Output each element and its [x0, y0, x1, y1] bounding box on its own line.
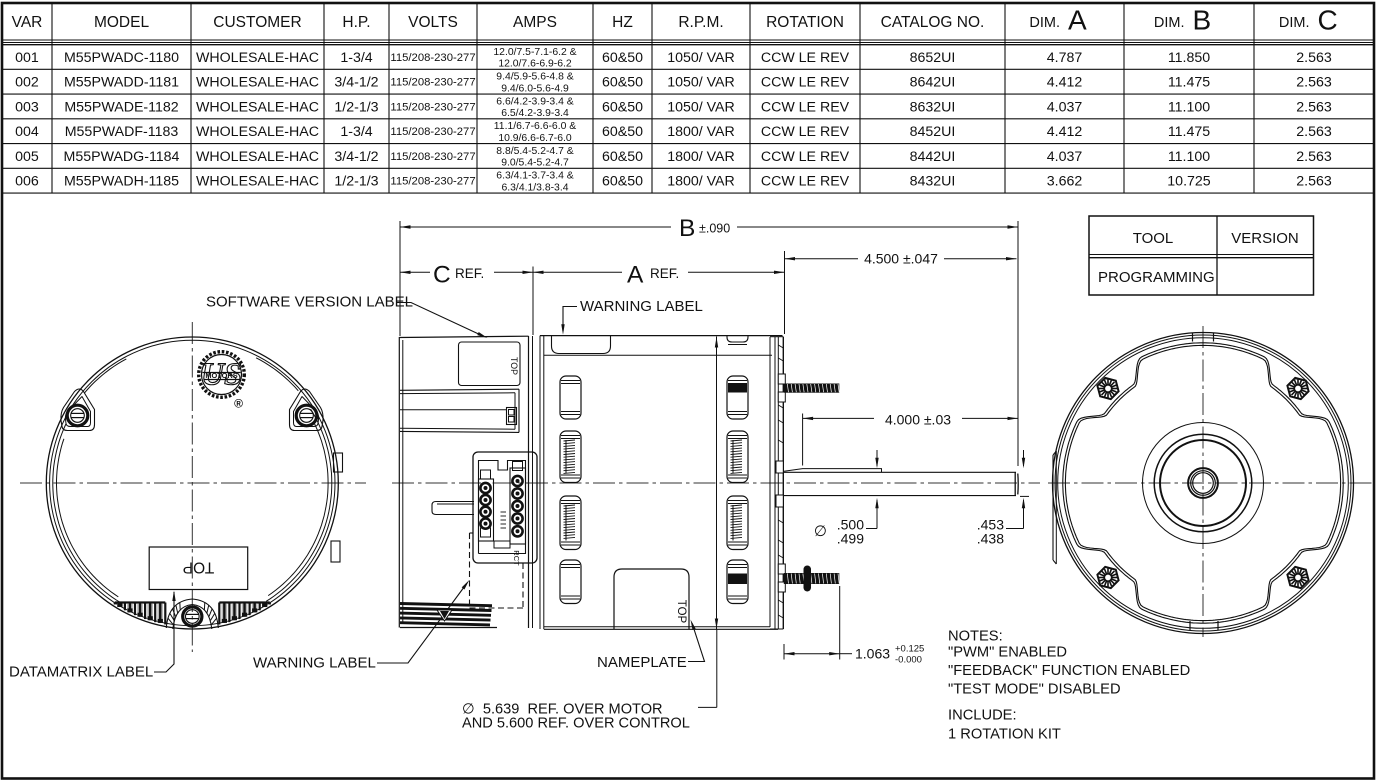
- svg-text:001: 001: [15, 50, 39, 66]
- svg-text:A: A: [1068, 5, 1087, 36]
- svg-text:2.563: 2.563: [1296, 149, 1332, 165]
- svg-text:C: C: [433, 261, 451, 288]
- svg-text:003: 003: [15, 99, 39, 115]
- svg-text:4.037: 4.037: [1047, 149, 1083, 165]
- svg-text:60&50: 60&50: [602, 124, 643, 140]
- svg-text:11.100: 11.100: [1168, 149, 1210, 165]
- svg-text:SOFTWARE VERSION LABEL: SOFTWARE VERSION LABEL: [206, 294, 413, 311]
- svg-text:WHOLESALE-HAC: WHOLESALE-HAC: [196, 50, 319, 66]
- svg-text:8.8/5.4-5.2-4.7 &: 8.8/5.4-5.2-4.7 &: [496, 146, 573, 157]
- svg-text:115/208-230-277: 115/208-230-277: [390, 52, 475, 64]
- svg-text:115/208-230-277: 115/208-230-277: [390, 77, 475, 89]
- svg-text:12.0/7.5-7.1-6.2 &: 12.0/7.5-7.1-6.2 &: [493, 47, 576, 58]
- svg-text:CCW LE REV: CCW LE REV: [761, 75, 850, 91]
- svg-text:8442UI: 8442UI: [910, 149, 956, 165]
- svg-text:8642UI: 8642UI: [910, 75, 956, 91]
- svg-text:∅: ∅: [814, 523, 827, 540]
- svg-text:1800/ VAR: 1800/ VAR: [667, 149, 735, 165]
- svg-text:PROGRAMMING: PROGRAMMING: [1098, 269, 1215, 286]
- svg-text:H.P.: H.P.: [342, 14, 370, 31]
- svg-text:C: C: [1318, 5, 1338, 36]
- svg-text:1050/ VAR: 1050/ VAR: [667, 50, 735, 66]
- svg-text:M55PWADD-1181: M55PWADD-1181: [64, 75, 179, 91]
- svg-text:11.100: 11.100: [1168, 99, 1210, 115]
- svg-text:12.0/7.6-6.9-6.2: 12.0/7.6-6.9-6.2: [498, 59, 572, 70]
- svg-text:60&50: 60&50: [602, 174, 643, 190]
- svg-text:6.3/4.1-3.7-3.4 &: 6.3/4.1-3.7-3.4 &: [496, 171, 573, 182]
- svg-text:WHOLESALE-HAC: WHOLESALE-HAC: [196, 174, 319, 190]
- svg-text:M55PWADC-1180: M55PWADC-1180: [64, 50, 179, 66]
- svg-text:60&50: 60&50: [602, 99, 643, 115]
- svg-text:8452UI: 8452UI: [910, 124, 956, 140]
- svg-text:4.787: 4.787: [1047, 50, 1083, 66]
- svg-text:R.P.M.: R.P.M.: [678, 14, 723, 31]
- svg-text:B: B: [1193, 5, 1212, 36]
- svg-text:2.563: 2.563: [1296, 99, 1332, 115]
- svg-text:CCW LE REV: CCW LE REV: [761, 124, 850, 140]
- svg-text:4.412: 4.412: [1047, 75, 1083, 91]
- svg-text:8632UI: 8632UI: [910, 99, 956, 115]
- svg-text:11.850: 11.850: [1168, 50, 1210, 66]
- svg-text:INCLUDE:: INCLUDE:: [948, 708, 1017, 724]
- svg-text:2.563: 2.563: [1296, 50, 1332, 66]
- svg-text:005: 005: [15, 149, 39, 165]
- svg-text:2.563: 2.563: [1296, 124, 1332, 140]
- svg-text:RCT: RCT: [512, 550, 521, 566]
- svg-text:"FEEDBACK" FUNCTION ENABLED: "FEEDBACK" FUNCTION ENABLED: [948, 663, 1190, 679]
- svg-text:"PWM" ENABLED: "PWM" ENABLED: [948, 645, 1067, 661]
- svg-text:3/4-1/2: 3/4-1/2: [334, 75, 378, 91]
- svg-text:3.662: 3.662: [1047, 174, 1083, 190]
- svg-text:1050/ VAR: 1050/ VAR: [667, 99, 735, 115]
- svg-text:NAMEPLATE: NAMEPLATE: [597, 654, 687, 671]
- svg-text:1.063: 1.063: [855, 646, 890, 662]
- svg-text:1 ROTATION KIT: 1 ROTATION KIT: [948, 727, 1061, 743]
- svg-text:4.037: 4.037: [1047, 99, 1083, 115]
- svg-text:CCW LE REV: CCW LE REV: [761, 99, 850, 115]
- svg-text:115/208-230-277: 115/208-230-277: [390, 151, 475, 163]
- svg-text:TOP: TOP: [509, 357, 519, 375]
- svg-text:TOP: TOP: [675, 600, 687, 624]
- svg-text:WHOLESALE-HAC: WHOLESALE-HAC: [196, 124, 319, 140]
- svg-text:002: 002: [15, 75, 39, 91]
- svg-text:1050/ VAR: 1050/ VAR: [667, 75, 735, 91]
- svg-text:CATALOG NO.: CATALOG NO.: [881, 14, 985, 31]
- svg-text:B: B: [679, 215, 695, 242]
- svg-text:CUSTOMER: CUSTOMER: [213, 14, 301, 31]
- svg-text:WARNING LABEL: WARNING LABEL: [580, 298, 703, 315]
- svg-text:6.5/4.2-3.9-3.4: 6.5/4.2-3.9-3.4: [501, 108, 569, 119]
- svg-text:MODEL: MODEL: [94, 14, 150, 31]
- svg-text:60&50: 60&50: [602, 75, 643, 91]
- svg-text:11.1/6.7-6.6-6.0 &: 11.1/6.7-6.6-6.0 &: [494, 121, 576, 132]
- svg-text:NOTES:: NOTES:: [948, 629, 1003, 645]
- svg-text:+0.125: +0.125: [895, 644, 924, 655]
- svg-text:.499: .499: [837, 531, 864, 547]
- svg-text:VERSION: VERSION: [1231, 230, 1299, 247]
- svg-text:MOTORS: MOTORS: [205, 371, 237, 380]
- svg-text:M55PWADE-1182: M55PWADE-1182: [64, 99, 178, 115]
- svg-text:WHOLESALE-HAC: WHOLESALE-HAC: [196, 149, 319, 165]
- svg-text:1800/ VAR: 1800/ VAR: [667, 124, 735, 140]
- svg-text:1-3/4: 1-3/4: [340, 50, 372, 66]
- svg-text:DIM.: DIM.: [1279, 15, 1310, 31]
- svg-text:60&50: 60&50: [602, 50, 643, 66]
- svg-text:WARNING LABEL: WARNING LABEL: [253, 655, 376, 672]
- svg-text:9.4/6.0-5.6-4.9: 9.4/6.0-5.6-4.9: [501, 83, 569, 94]
- svg-text:WHOLESALE-HAC: WHOLESALE-HAC: [196, 75, 319, 91]
- svg-text:DATAMATRIX LABEL: DATAMATRIX LABEL: [9, 664, 153, 681]
- svg-text:HZ: HZ: [612, 14, 633, 31]
- svg-text:±.090: ±.090: [699, 222, 730, 236]
- svg-text:ROTATION: ROTATION: [766, 14, 844, 31]
- svg-text:TOP: TOP: [183, 559, 215, 576]
- svg-text:9.0/5.4-5.2-4.7: 9.0/5.4-5.2-4.7: [501, 158, 569, 169]
- svg-text:.438: .438: [977, 531, 1004, 547]
- svg-text:60&50: 60&50: [602, 149, 643, 165]
- svg-text:004: 004: [15, 124, 39, 140]
- svg-text:11.475: 11.475: [1168, 75, 1210, 91]
- svg-text:2.563: 2.563: [1296, 75, 1332, 91]
- svg-text:8652UI: 8652UI: [910, 50, 956, 66]
- svg-text:1-3/4: 1-3/4: [340, 124, 372, 140]
- svg-text:006: 006: [15, 174, 39, 190]
- svg-text:11.475: 11.475: [1168, 124, 1210, 140]
- svg-text:2.563: 2.563: [1296, 174, 1332, 190]
- svg-text:8432UI: 8432UI: [910, 174, 956, 190]
- svg-text:AMPS: AMPS: [513, 14, 557, 31]
- svg-text:®: ®: [234, 397, 243, 411]
- svg-text:"TEST MODE" DISABLED: "TEST MODE" DISABLED: [948, 682, 1121, 698]
- svg-text:1/2-1/3: 1/2-1/3: [334, 99, 378, 115]
- svg-text:WHOLESALE-HAC: WHOLESALE-HAC: [196, 99, 319, 115]
- svg-text:TOOL: TOOL: [1133, 230, 1174, 247]
- svg-text:CCW LE REV: CCW LE REV: [761, 174, 850, 190]
- svg-text:1800/ VAR: 1800/ VAR: [667, 174, 735, 190]
- svg-text:VAR: VAR: [12, 14, 43, 31]
- svg-text:AND 5.600 REF. OVER CONTROL: AND 5.600 REF. OVER CONTROL: [462, 716, 690, 732]
- svg-text:6.6/4.2-3.9-3.4 &: 6.6/4.2-3.9-3.4 &: [496, 96, 573, 107]
- svg-text:10.9/6.6-6.7-6.0: 10.9/6.6-6.7-6.0: [498, 133, 572, 144]
- svg-text:M55PWADH-1185: M55PWADH-1185: [64, 174, 179, 190]
- svg-text:VOLTS: VOLTS: [408, 14, 458, 31]
- svg-text:CCW LE REV: CCW LE REV: [761, 50, 850, 66]
- svg-text:CCW LE REV: CCW LE REV: [761, 149, 850, 165]
- svg-text:-0.000: -0.000: [895, 655, 922, 666]
- svg-text:M55PWADG-1184: M55PWADG-1184: [64, 149, 180, 165]
- svg-text:M55PWADF-1183: M55PWADF-1183: [65, 124, 179, 140]
- svg-text:115/208-230-277: 115/208-230-277: [390, 176, 475, 188]
- svg-text:DIM.: DIM.: [1029, 15, 1060, 31]
- svg-text:4.500 ±.047: 4.500 ±.047: [864, 251, 938, 267]
- svg-text:DIM.: DIM.: [1154, 15, 1185, 31]
- svg-text:10.725: 10.725: [1167, 174, 1211, 190]
- svg-text:115/208-230-277: 115/208-230-277: [390, 101, 475, 113]
- svg-text:4.000 ±.03: 4.000 ±.03: [885, 412, 951, 428]
- svg-text:REF.: REF.: [650, 266, 679, 281]
- svg-text:6.3/4.1/3.8-3.4: 6.3/4.1/3.8-3.4: [501, 182, 568, 193]
- svg-text:4.412: 4.412: [1047, 124, 1083, 140]
- svg-text:REF.: REF.: [455, 266, 484, 281]
- svg-text:9.4/5.9-5.6-4.8 &: 9.4/5.9-5.6-4.8 &: [496, 72, 573, 83]
- svg-text:115/208-230-277: 115/208-230-277: [390, 126, 475, 138]
- svg-text:1/2-1/3: 1/2-1/3: [334, 174, 378, 190]
- svg-text:3/4-1/2: 3/4-1/2: [334, 149, 378, 165]
- svg-text:A: A: [627, 261, 644, 288]
